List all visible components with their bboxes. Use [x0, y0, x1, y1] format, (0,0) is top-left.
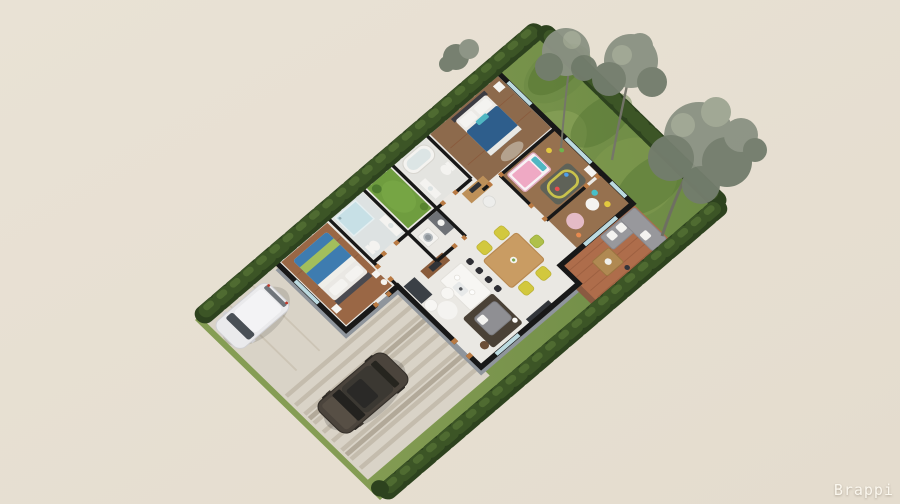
scene-canvas	[0, 0, 900, 504]
watermark: Brappi	[834, 481, 894, 499]
floor-plan-render: Brappi	[0, 0, 900, 504]
